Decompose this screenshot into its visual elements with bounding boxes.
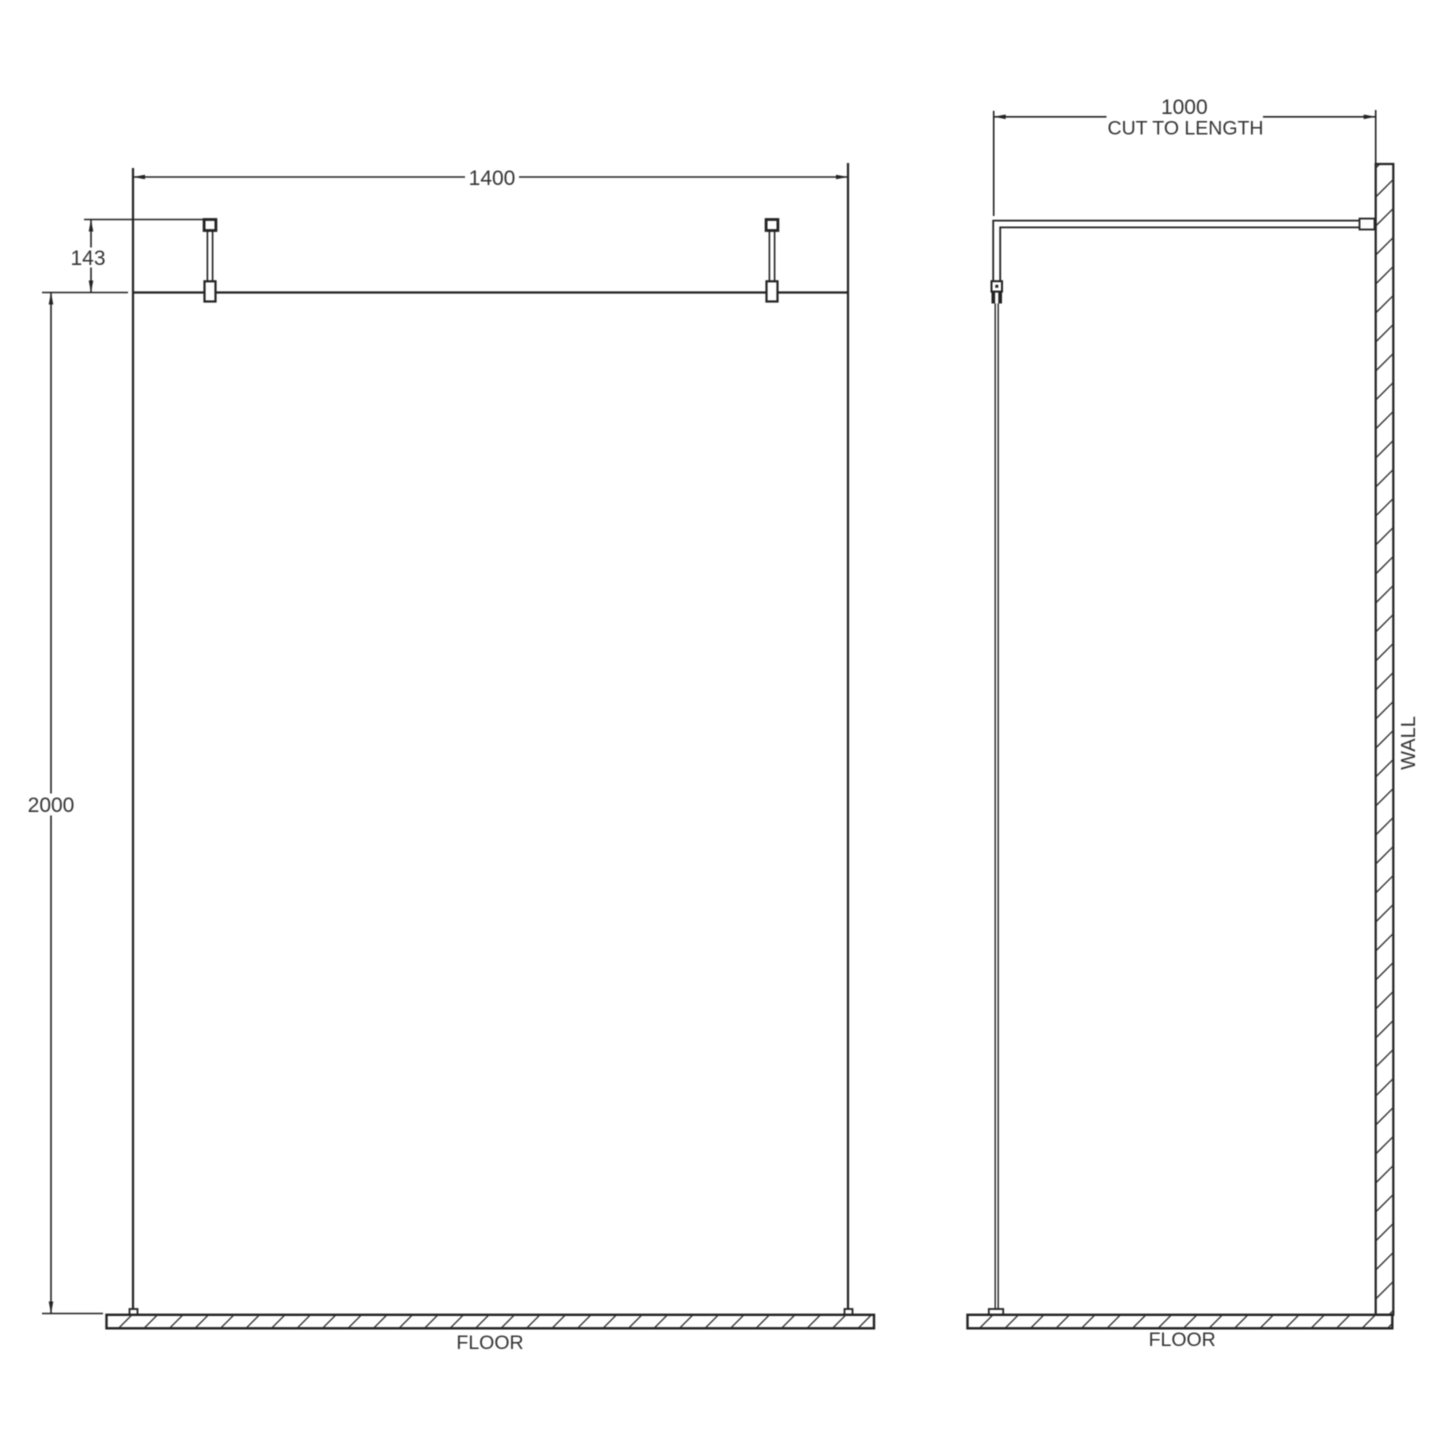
svg-text:FLOOR: FLOOR: [1149, 1329, 1216, 1351]
svg-text:143: 143: [70, 247, 105, 270]
svg-text:WALL: WALL: [1398, 716, 1420, 770]
svg-text:CUT TO LENGTH: CUT TO LENGTH: [1107, 118, 1263, 140]
svg-text:2000: 2000: [28, 794, 75, 817]
svg-text:1400: 1400: [469, 167, 516, 190]
svg-text:1000: 1000: [1161, 96, 1208, 119]
svg-text:FLOOR: FLOOR: [456, 1332, 523, 1354]
